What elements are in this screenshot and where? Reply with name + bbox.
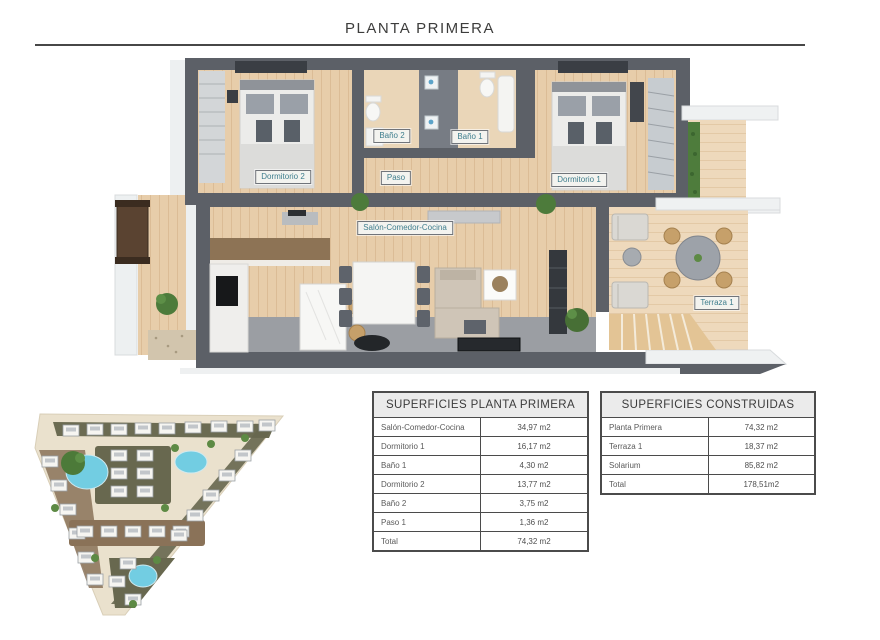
room-label-terraza-1: Terraza 1 xyxy=(694,296,739,310)
room-label-bano-2: Baño 2 xyxy=(373,129,410,143)
site-plan-rendering xyxy=(25,408,310,633)
floor-plan-rendering xyxy=(60,52,820,374)
superficies-planta-table: SUPERFICIES PLANTA PRIMERA Salón-Comedor… xyxy=(372,391,589,552)
brochure-page: PLANTA PRIMERA xyxy=(0,0,880,640)
row-value: 1,36 m2 xyxy=(481,513,589,532)
table-row: Baño 14,30 m2 xyxy=(373,456,588,475)
row-label: Terraza 1 xyxy=(601,437,708,456)
table-row: Planta Primera74,32 m2 xyxy=(601,418,815,437)
site-plan xyxy=(25,408,310,633)
table-row: Dormitorio 116,17 m2 xyxy=(373,437,588,456)
row-label: Solarium xyxy=(601,456,708,475)
bed-dormitorio-2 xyxy=(199,61,314,188)
table-row: Paso 11,36 m2 xyxy=(373,513,588,532)
table-row: Terraza 118,37 m2 xyxy=(601,437,815,456)
room-label-bano-1: Baño 1 xyxy=(451,130,488,144)
superficies-planta-rows: Salón-Comedor-Cocina34,97 m2Dormitorio 1… xyxy=(373,418,588,552)
room-label-dormitorio-2: Dormitorio 2 xyxy=(255,170,311,184)
table-title: SUPERFICIES CONSTRUIDAS xyxy=(601,392,815,418)
row-label: Baño 1 xyxy=(373,456,481,475)
row-label: Paso 1 xyxy=(373,513,481,532)
row-label: Salón-Comedor-Cocina xyxy=(373,418,481,437)
row-value: 4,30 m2 xyxy=(481,456,589,475)
superficies-construidas-rows: Planta Primera74,32 m2Terraza 118,37 m2S… xyxy=(601,418,815,495)
row-value: 178,51m2 xyxy=(708,475,815,495)
row-label: Dormitorio 1 xyxy=(373,437,481,456)
row-value: 16,17 m2 xyxy=(481,437,589,456)
title-divider xyxy=(35,44,805,46)
floor-plan: Dormitorio 2 Baño 2 Baño 1 Paso Dormitor… xyxy=(60,52,820,374)
row-label: Planta Primera xyxy=(601,418,708,437)
row-label: Dormitorio 2 xyxy=(373,475,481,494)
room-label-dormitorio-1: Dormitorio 1 xyxy=(551,173,607,187)
room-label-paso: Paso xyxy=(381,171,411,185)
page-title: PLANTA PRIMERA xyxy=(35,20,805,37)
row-label: Baño 2 xyxy=(373,494,481,513)
table-row: Salón-Comedor-Cocina34,97 m2 xyxy=(373,418,588,437)
row-value: 3,75 m2 xyxy=(481,494,589,513)
room-label-salon-comedor-cocina: Salón-Comedor-Cocina xyxy=(357,221,453,235)
table-row: Dormitorio 213,77 m2 xyxy=(373,475,588,494)
upper-terrace xyxy=(672,106,780,213)
table-title: SUPERFICIES PLANTA PRIMERA xyxy=(373,392,588,418)
row-value: 74,32 m2 xyxy=(708,418,815,437)
row-label: Total xyxy=(373,532,481,552)
superficies-construidas-table: SUPERFICIES CONSTRUIDAS Planta Primera74… xyxy=(600,391,816,495)
table-row: Solarium85,82 m2 xyxy=(601,456,815,475)
row-value: 18,37 m2 xyxy=(708,437,815,456)
row-label: Total xyxy=(601,475,708,495)
living-block xyxy=(180,193,786,374)
row-value: 13,77 m2 xyxy=(481,475,589,494)
table-row: Total178,51m2 xyxy=(601,475,815,495)
row-value: 34,97 m2 xyxy=(481,418,589,437)
table-row: Total74,32 m2 xyxy=(373,532,588,552)
row-value: 74,32 m2 xyxy=(481,532,589,552)
table-row: Baño 23,75 m2 xyxy=(373,494,588,513)
row-value: 85,82 m2 xyxy=(708,456,815,475)
